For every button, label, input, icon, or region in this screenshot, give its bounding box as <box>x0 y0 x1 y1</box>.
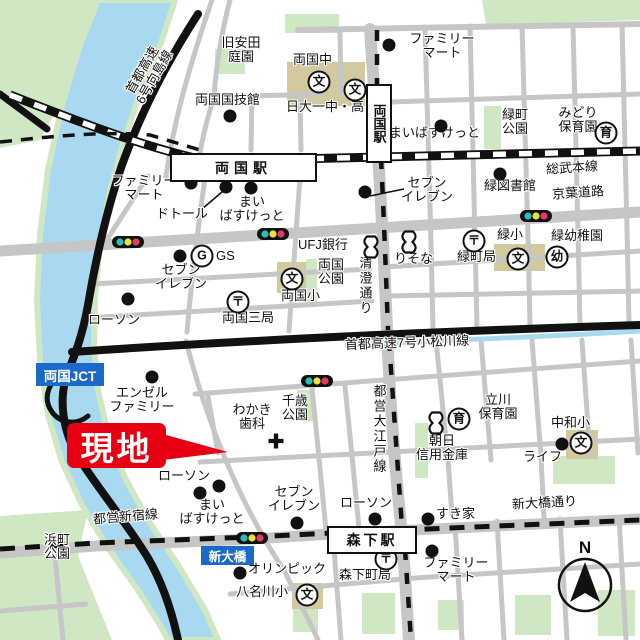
station-box-oedo-ryogoku: 両国駅 <box>366 84 392 163</box>
bridge-label-shin-ohashi: 新大橋 <box>201 546 254 565</box>
expressway-7-komatsugawa <box>72 325 640 352</box>
station-box-morishita: 森下駅 <box>327 526 417 554</box>
junction-label-ryogoku-jct: 両国JCT <box>36 363 104 386</box>
compass: N <box>552 536 622 618</box>
base-map <box>0 0 640 640</box>
pointer-lines <box>202 189 404 209</box>
station-box-jr-ryogoku: 両国駅 <box>170 153 317 182</box>
compass-needle-icon <box>570 562 600 602</box>
site-marker: 現地 <box>67 423 166 468</box>
map-canvas: 旧安田庭園両国中日大一中・高両国国技館ファミリーマートまいばすけっと緑町公園みど… <box>0 0 640 640</box>
compass-n-label: N <box>579 538 591 557</box>
